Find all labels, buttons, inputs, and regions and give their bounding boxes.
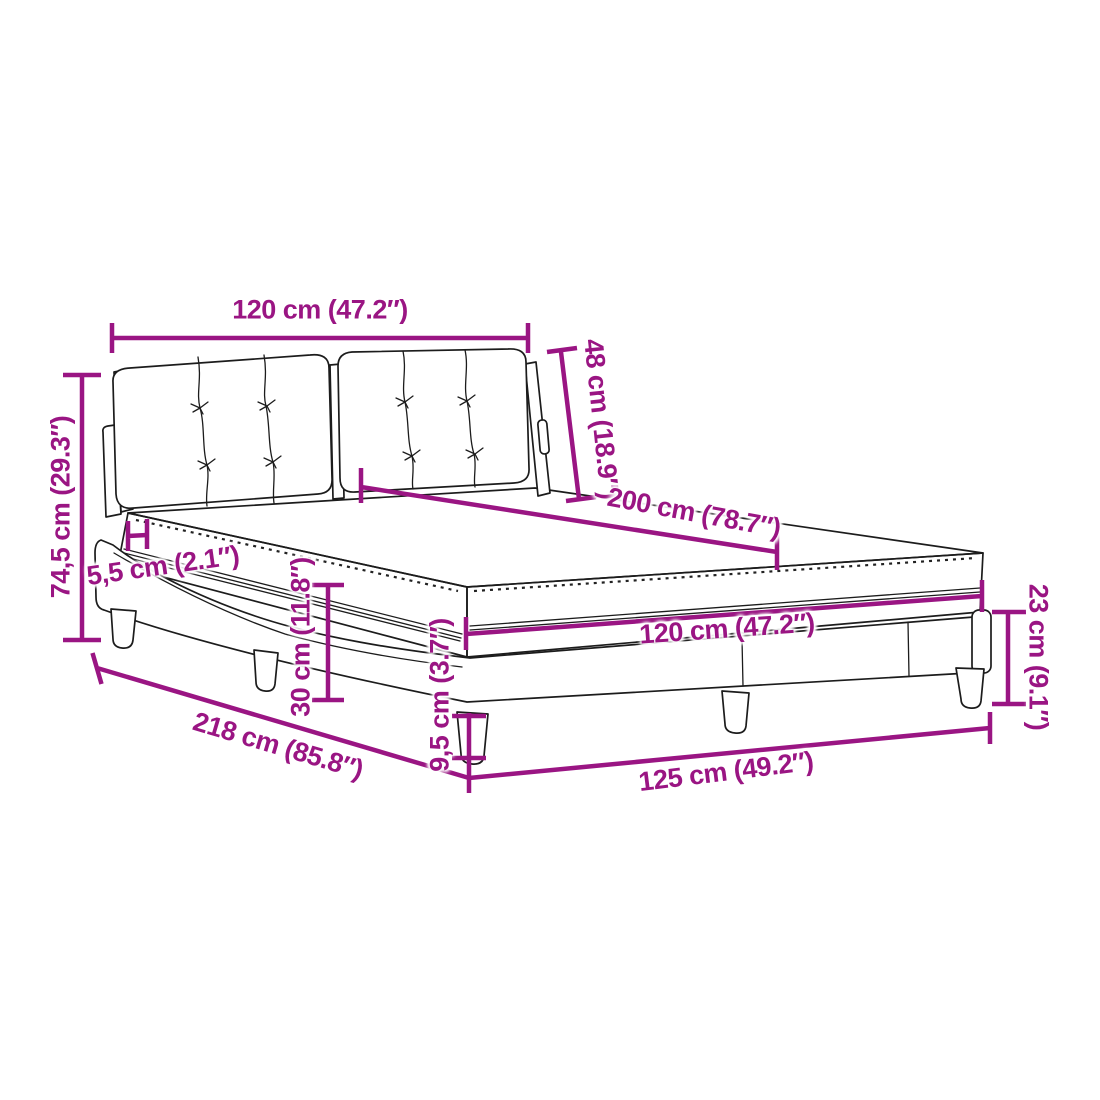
dim-line-headboard-width xyxy=(112,323,528,353)
dim-label-headboard-width: 120 cm (47.2″) xyxy=(232,295,408,326)
leg xyxy=(722,691,749,733)
dimension-diagram: 120 cm (47.2″) 48 cm (18.9″) 200 cm (78.… xyxy=(0,0,1100,1100)
dim-line-topper-thickness xyxy=(128,519,147,551)
mattress-top xyxy=(128,488,983,587)
headboard-bracket xyxy=(538,420,550,455)
mattress-edge-hatch xyxy=(474,558,976,591)
headboard-cushion-left xyxy=(113,355,332,508)
leg xyxy=(111,609,136,648)
headboard-cushion-right xyxy=(338,349,529,492)
dim-line-foot-height xyxy=(992,612,1026,704)
leg xyxy=(956,668,984,708)
base-frame-end-cap xyxy=(972,610,991,673)
dim-label-leg-height: 9,5 cm (3.7″) xyxy=(425,618,456,772)
dim-label-foot-height: 23 cm (9.1″) xyxy=(1023,584,1054,731)
dim-label-base-height: 30 cm (11.8″) xyxy=(286,557,317,717)
dim-label-overall-height: 74,5 cm (29.3″) xyxy=(46,416,77,599)
leg xyxy=(254,650,278,691)
